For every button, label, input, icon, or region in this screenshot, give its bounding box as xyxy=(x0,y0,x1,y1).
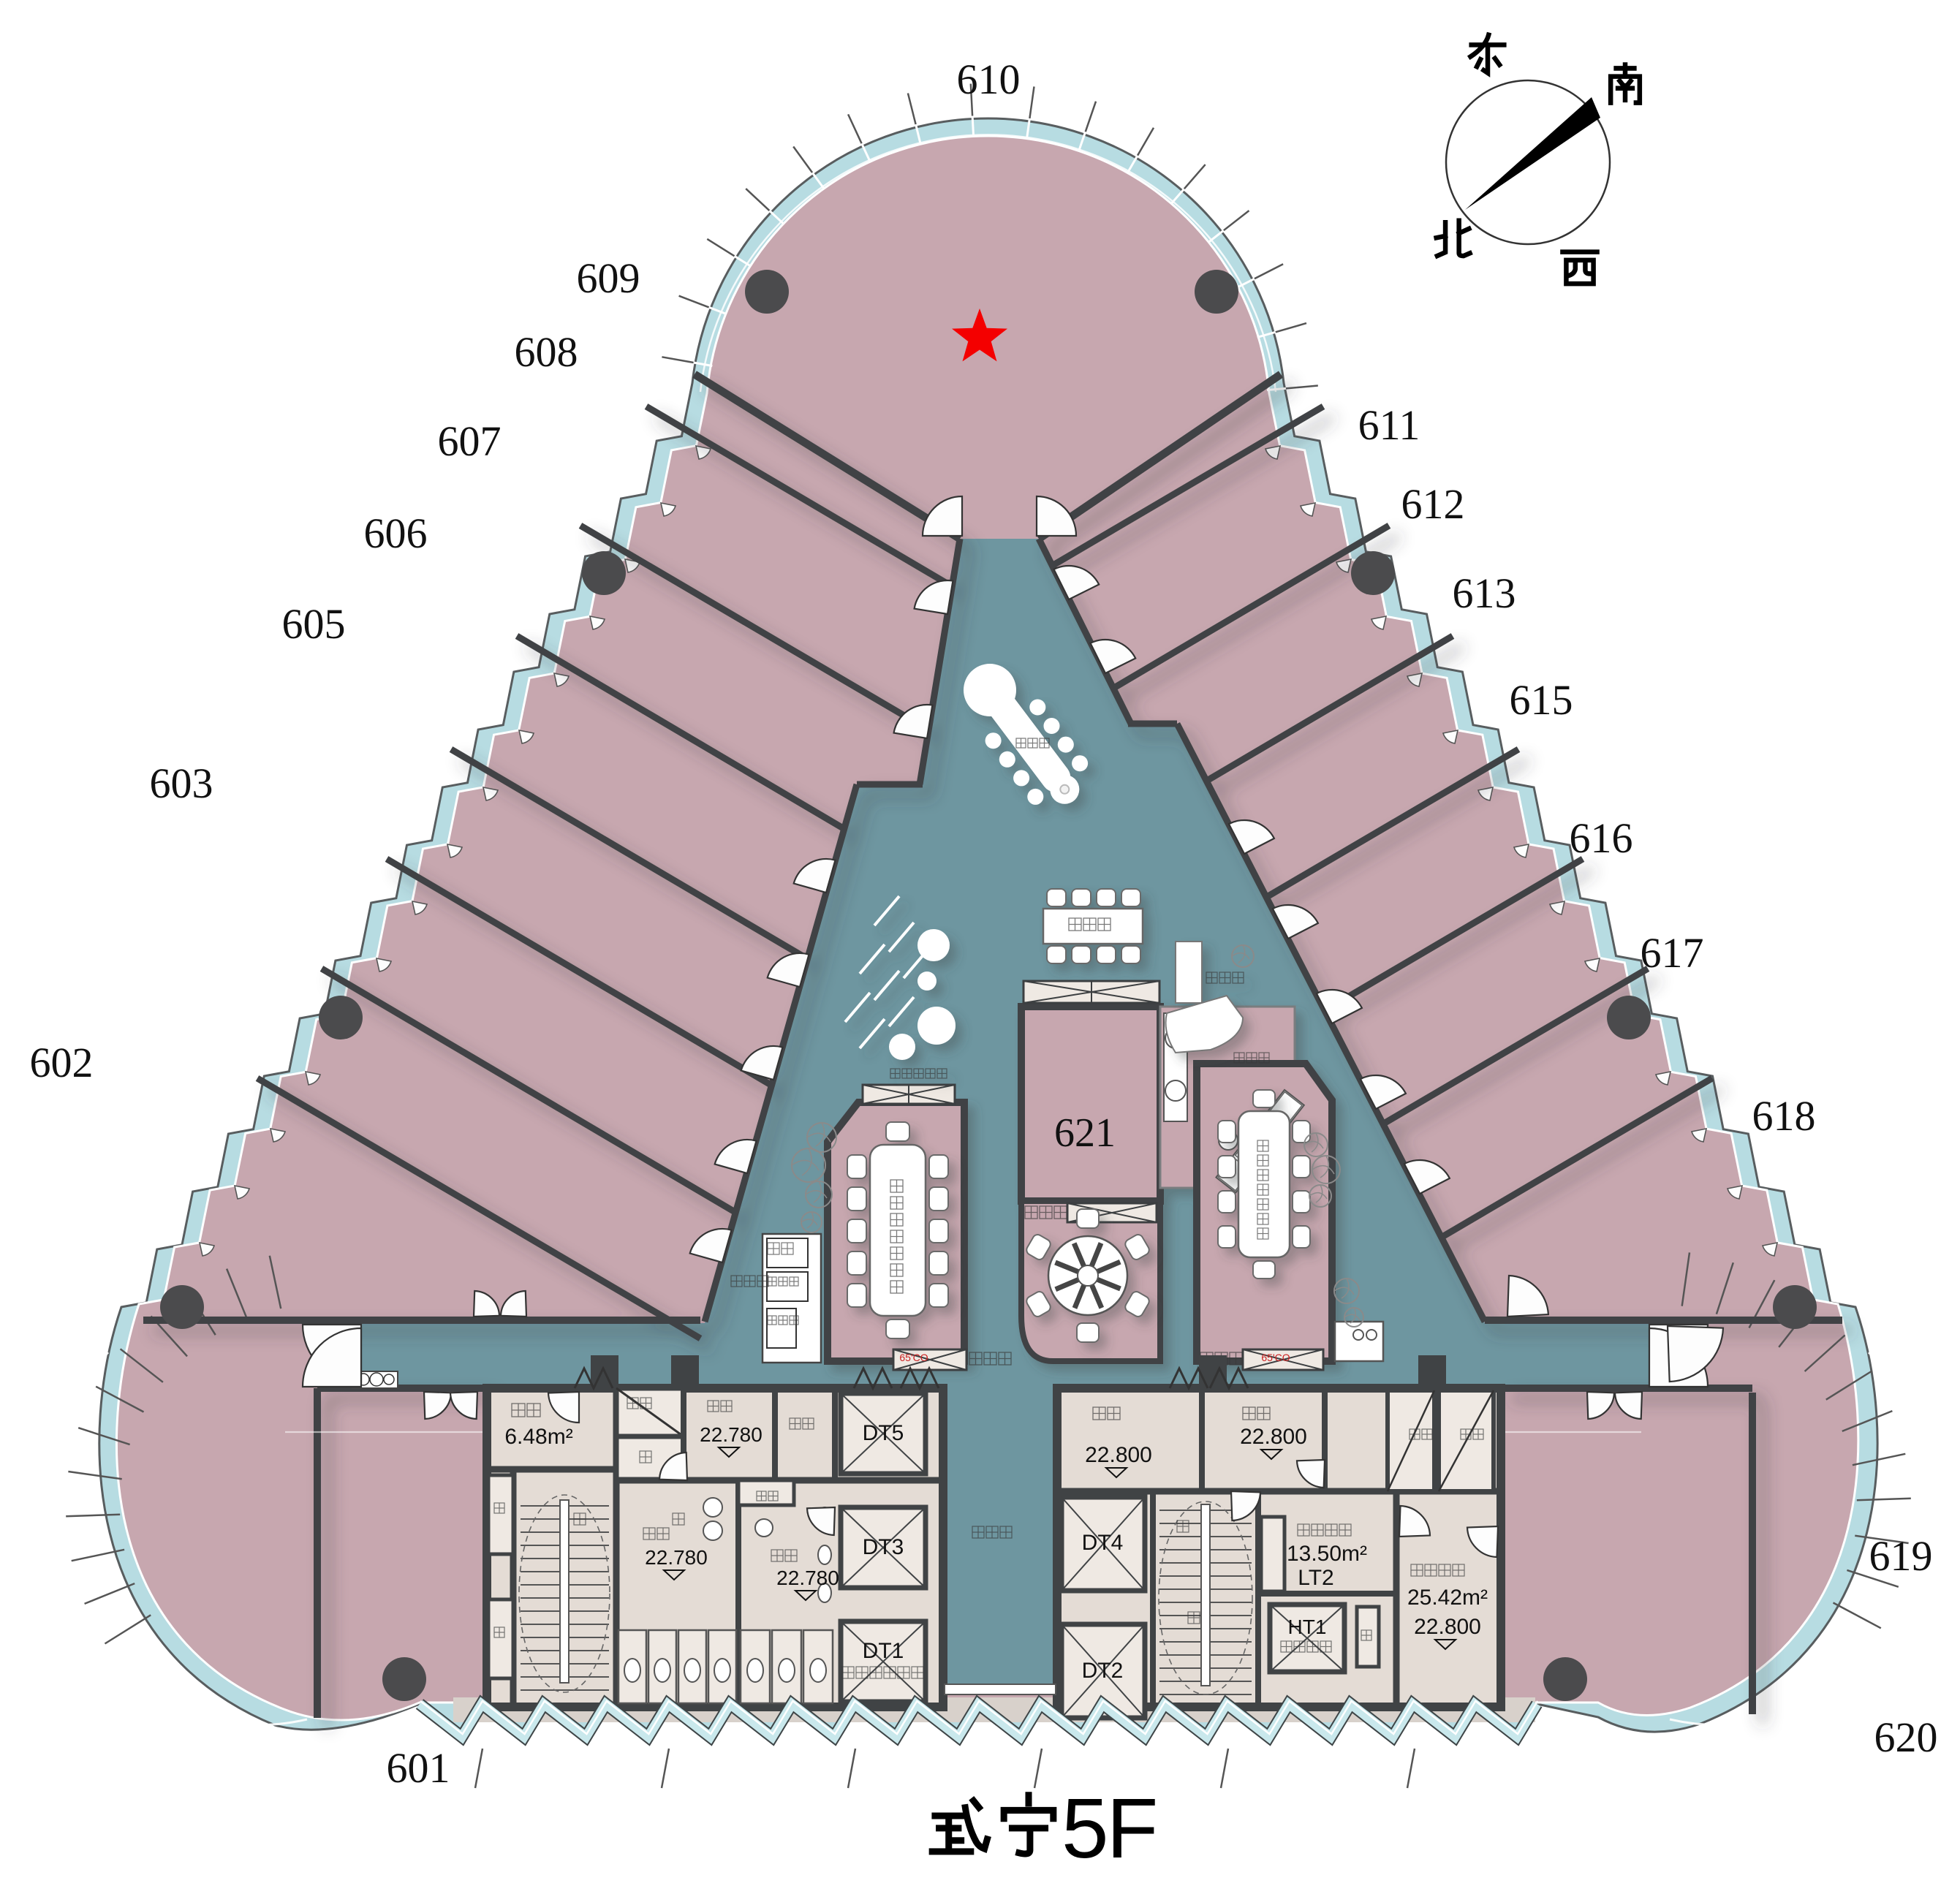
svg-text:DT2: DT2 xyxy=(1082,1659,1124,1683)
svg-text:619: 619 xyxy=(1869,1532,1933,1580)
svg-text:606: 606 xyxy=(364,510,428,557)
svg-text:605: 605 xyxy=(282,600,346,648)
svg-text:613: 613 xyxy=(1453,569,1516,617)
svg-text:65'CO: 65'CO xyxy=(899,1352,928,1363)
svg-text:609: 609 xyxy=(577,254,640,302)
svg-text:DT5: DT5 xyxy=(863,1421,904,1445)
svg-text:603: 603 xyxy=(150,760,213,807)
svg-text:22.780: 22.780 xyxy=(700,1423,763,1446)
svg-text:611: 611 xyxy=(1358,401,1420,449)
svg-text:22.780: 22.780 xyxy=(645,1546,708,1569)
svg-text:5F: 5F xyxy=(1062,1781,1156,1876)
svg-text:608: 608 xyxy=(515,328,578,376)
svg-text:602: 602 xyxy=(30,1039,94,1086)
svg-text:620: 620 xyxy=(1874,1713,1938,1761)
svg-text:22.800: 22.800 xyxy=(1085,1443,1152,1467)
svg-text:DT1: DT1 xyxy=(863,1639,904,1663)
svg-text:DT3: DT3 xyxy=(863,1535,904,1559)
svg-text:HT1: HT1 xyxy=(1288,1616,1327,1638)
svg-text:607: 607 xyxy=(438,417,502,465)
svg-text:25.42m²: 25.42m² xyxy=(1407,1586,1488,1610)
svg-text:616: 616 xyxy=(1570,814,1633,862)
svg-text:618: 618 xyxy=(1752,1092,1816,1140)
svg-text:65'CO: 65'CO xyxy=(1261,1352,1290,1363)
svg-text:6.48m²: 6.48m² xyxy=(504,1425,572,1449)
svg-text:22.780: 22.780 xyxy=(776,1567,839,1589)
svg-text:617: 617 xyxy=(1641,929,1704,977)
svg-text:22.800: 22.800 xyxy=(1240,1425,1307,1449)
svg-text:612: 612 xyxy=(1401,480,1465,528)
svg-text:LT2: LT2 xyxy=(1298,1566,1333,1590)
svg-text:601: 601 xyxy=(387,1744,450,1792)
svg-text:621: 621 xyxy=(1054,1110,1116,1156)
svg-text:13.50m²: 13.50m² xyxy=(1287,1542,1367,1566)
svg-text:610: 610 xyxy=(957,56,1021,103)
svg-text:615: 615 xyxy=(1510,676,1573,724)
svg-text:DT4: DT4 xyxy=(1082,1531,1124,1555)
svg-text:22.800: 22.800 xyxy=(1414,1615,1481,1639)
